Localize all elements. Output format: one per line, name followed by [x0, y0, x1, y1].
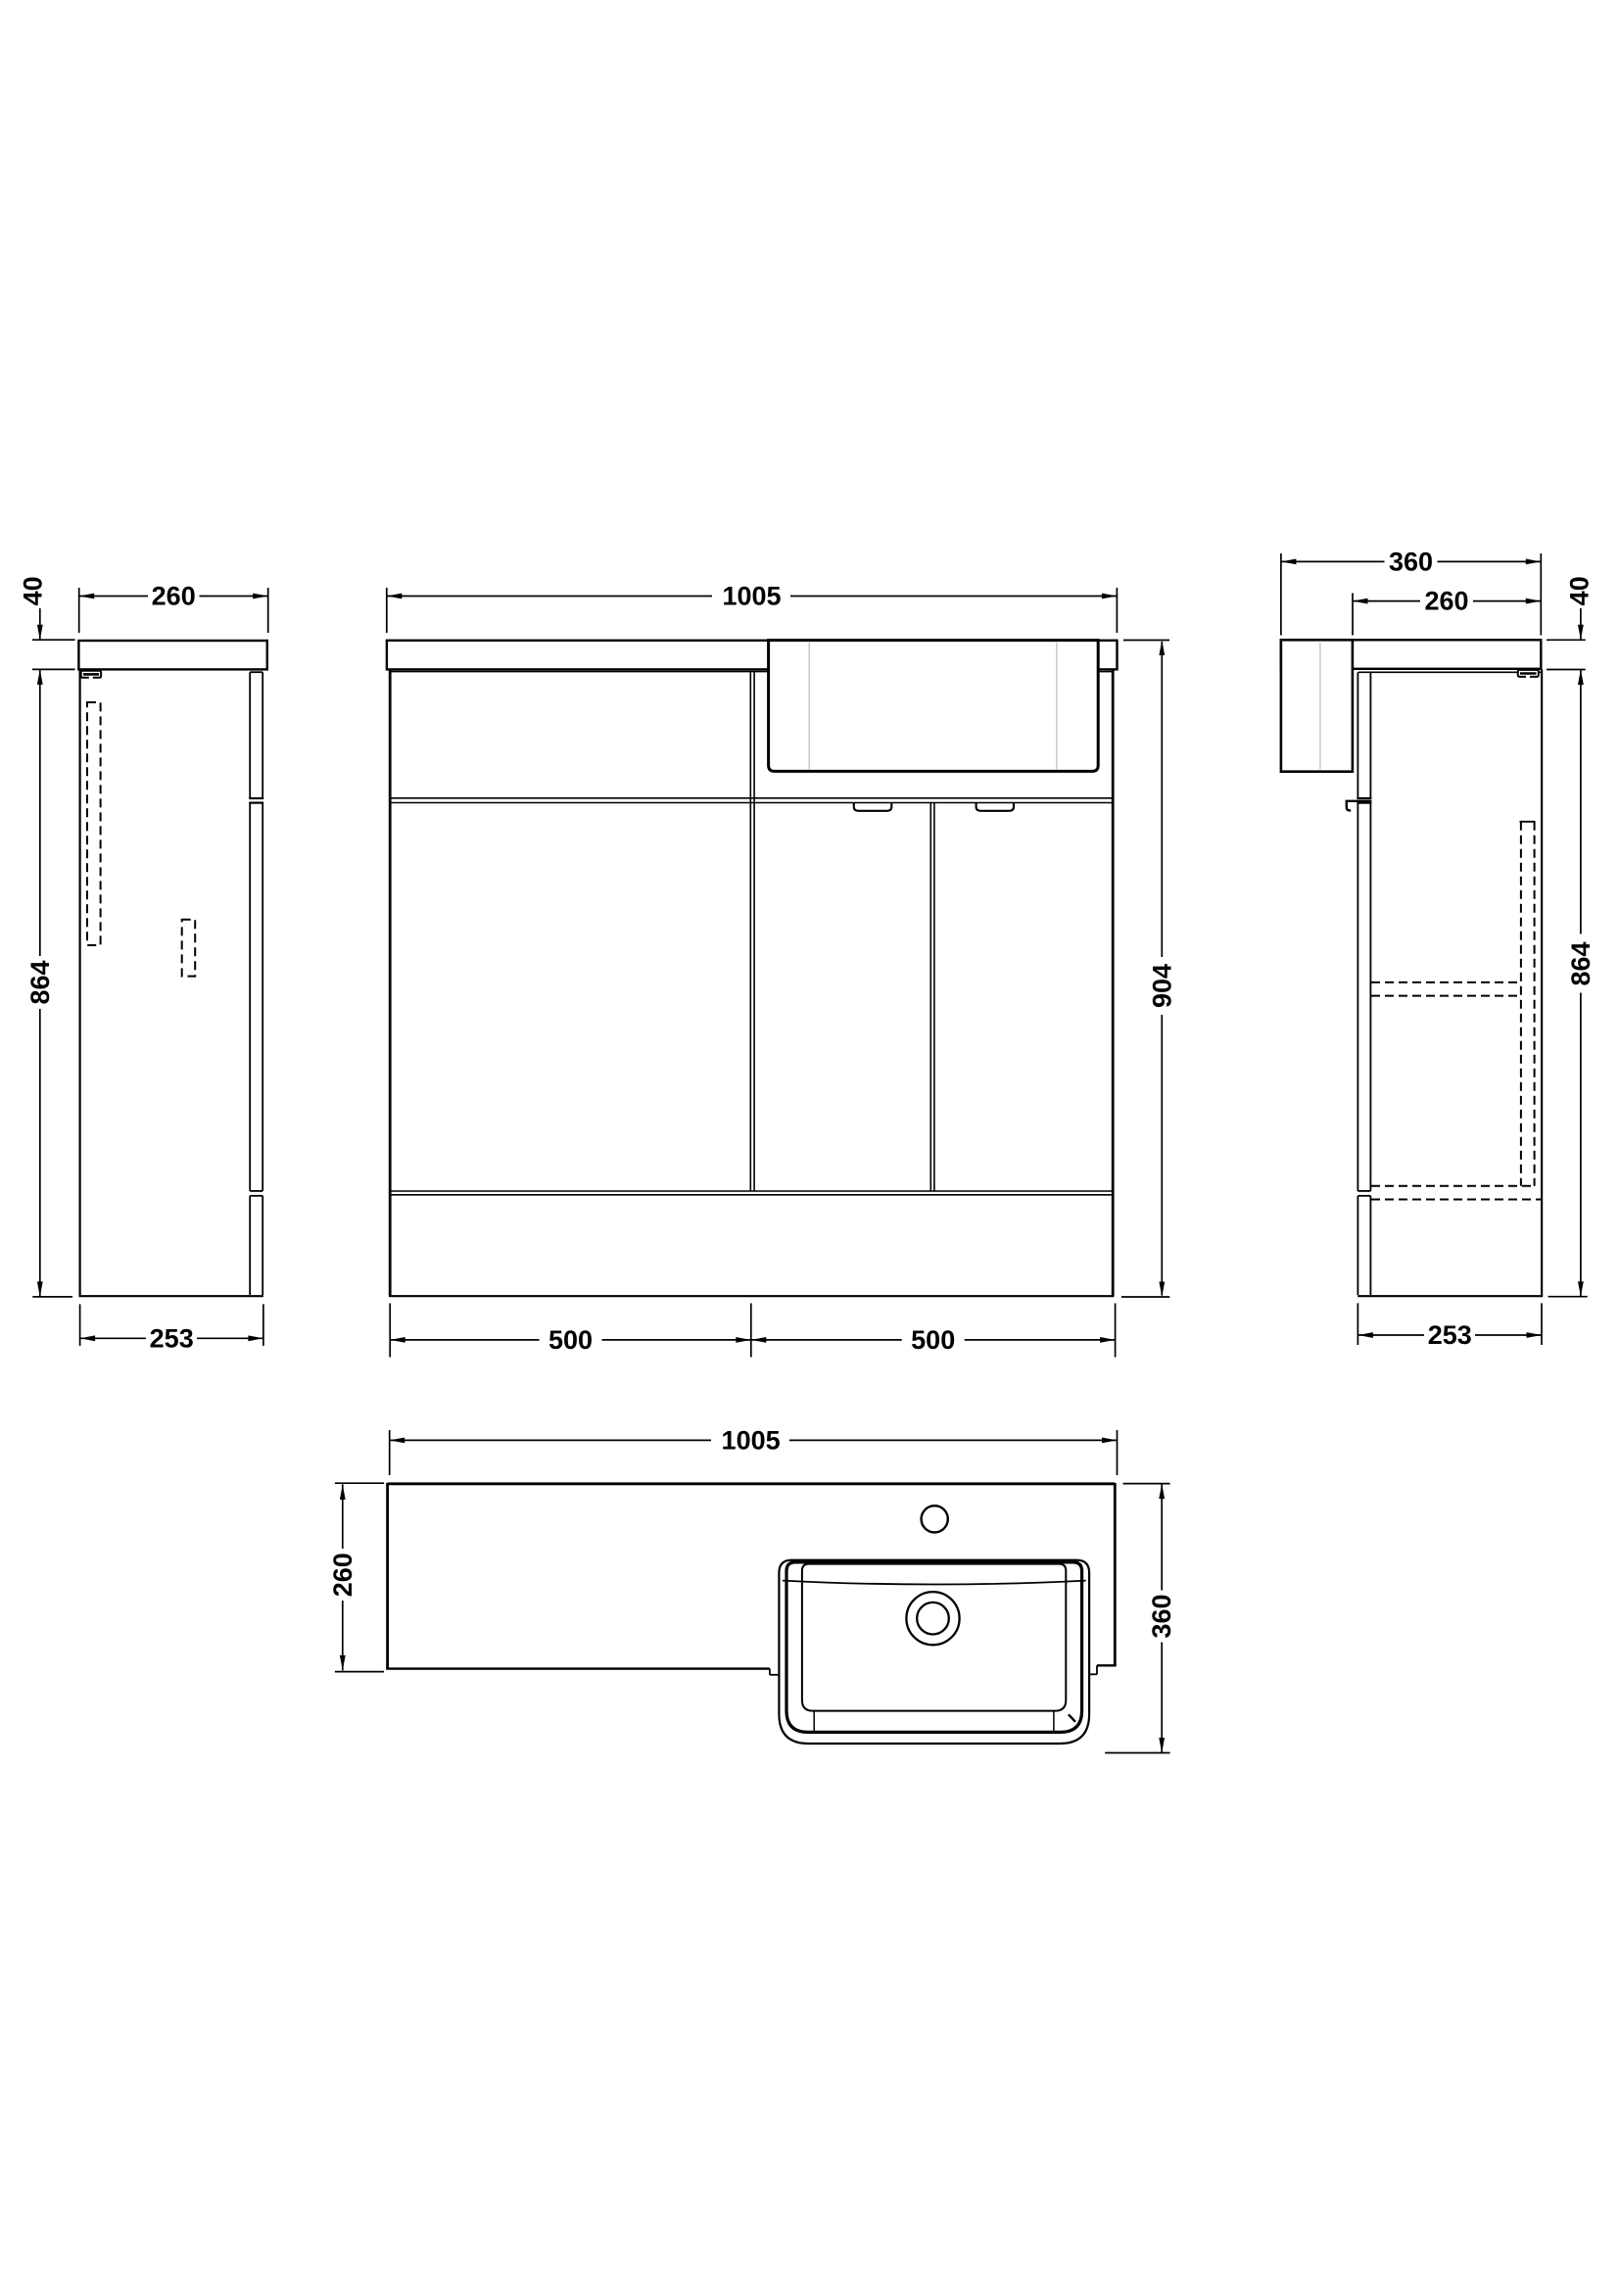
- svg-text:253: 253: [150, 1323, 194, 1353]
- svg-text:864: 864: [1566, 941, 1595, 985]
- svg-text:1005: 1005: [722, 582, 781, 611]
- svg-text:500: 500: [548, 1325, 593, 1355]
- svg-text:260: 260: [152, 582, 196, 611]
- svg-text:1005: 1005: [722, 1425, 781, 1455]
- svg-text:360: 360: [1389, 547, 1433, 576]
- svg-text:260: 260: [1424, 587, 1468, 616]
- svg-text:40: 40: [19, 576, 48, 605]
- svg-text:40: 40: [1565, 576, 1595, 605]
- svg-text:904: 904: [1147, 964, 1176, 1008]
- svg-text:864: 864: [25, 960, 55, 1004]
- svg-text:500: 500: [911, 1325, 955, 1355]
- svg-text:260: 260: [328, 1553, 357, 1597]
- svg-text:253: 253: [1428, 1320, 1472, 1350]
- svg-text:360: 360: [1147, 1594, 1176, 1638]
